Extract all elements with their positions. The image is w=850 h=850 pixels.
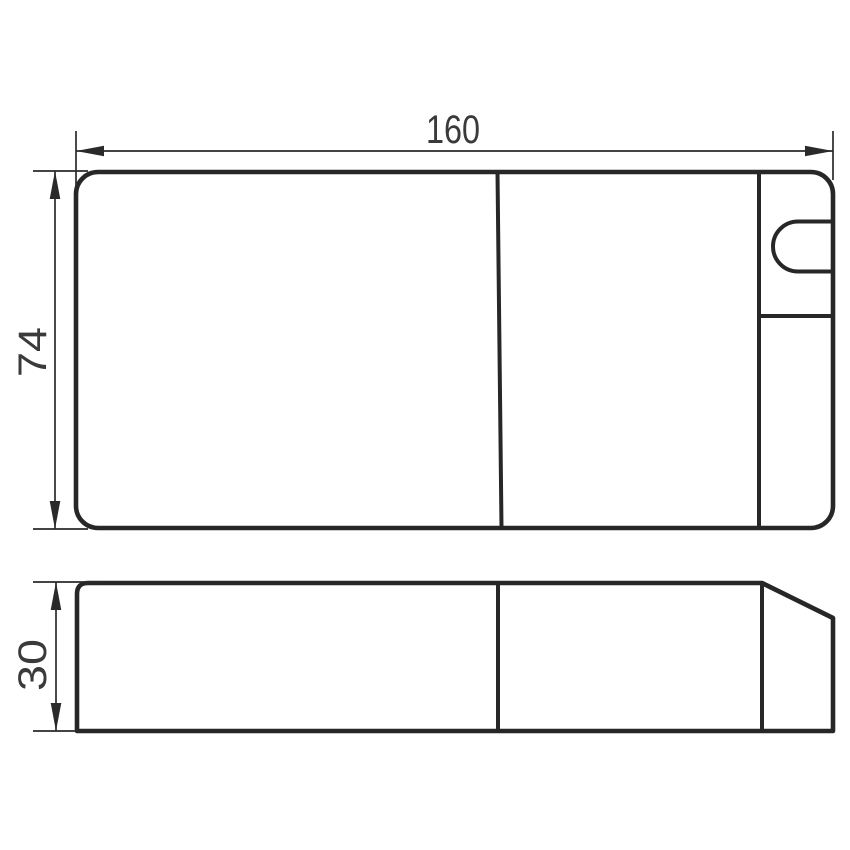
side-view-outline: [77, 583, 833, 731]
side-view: [77, 583, 833, 731]
top-view: [76, 172, 833, 528]
top-view-lid-seam-line: [498, 172, 502, 528]
width-arrowhead-right: [805, 146, 833, 157]
top-view-outline: [76, 172, 833, 528]
height-arrowhead-bottom: [50, 501, 61, 529]
depth-dimension-label: 30: [11, 639, 55, 691]
depth-arrowhead-bottom: [51, 703, 62, 731]
height-arrowhead-top: [50, 171, 61, 199]
width-dimension: 160: [76, 108, 833, 190]
depth-arrowhead-top: [51, 582, 62, 610]
cable-entry-notch: [773, 221, 831, 271]
technical-drawing-canvas: 160 74 30: [0, 0, 850, 850]
height-dimension-label: 74: [11, 327, 55, 377]
width-dimension-label: 160: [426, 108, 480, 152]
depth-dimension: 30: [11, 582, 100, 731]
width-arrowhead-left: [76, 146, 104, 157]
